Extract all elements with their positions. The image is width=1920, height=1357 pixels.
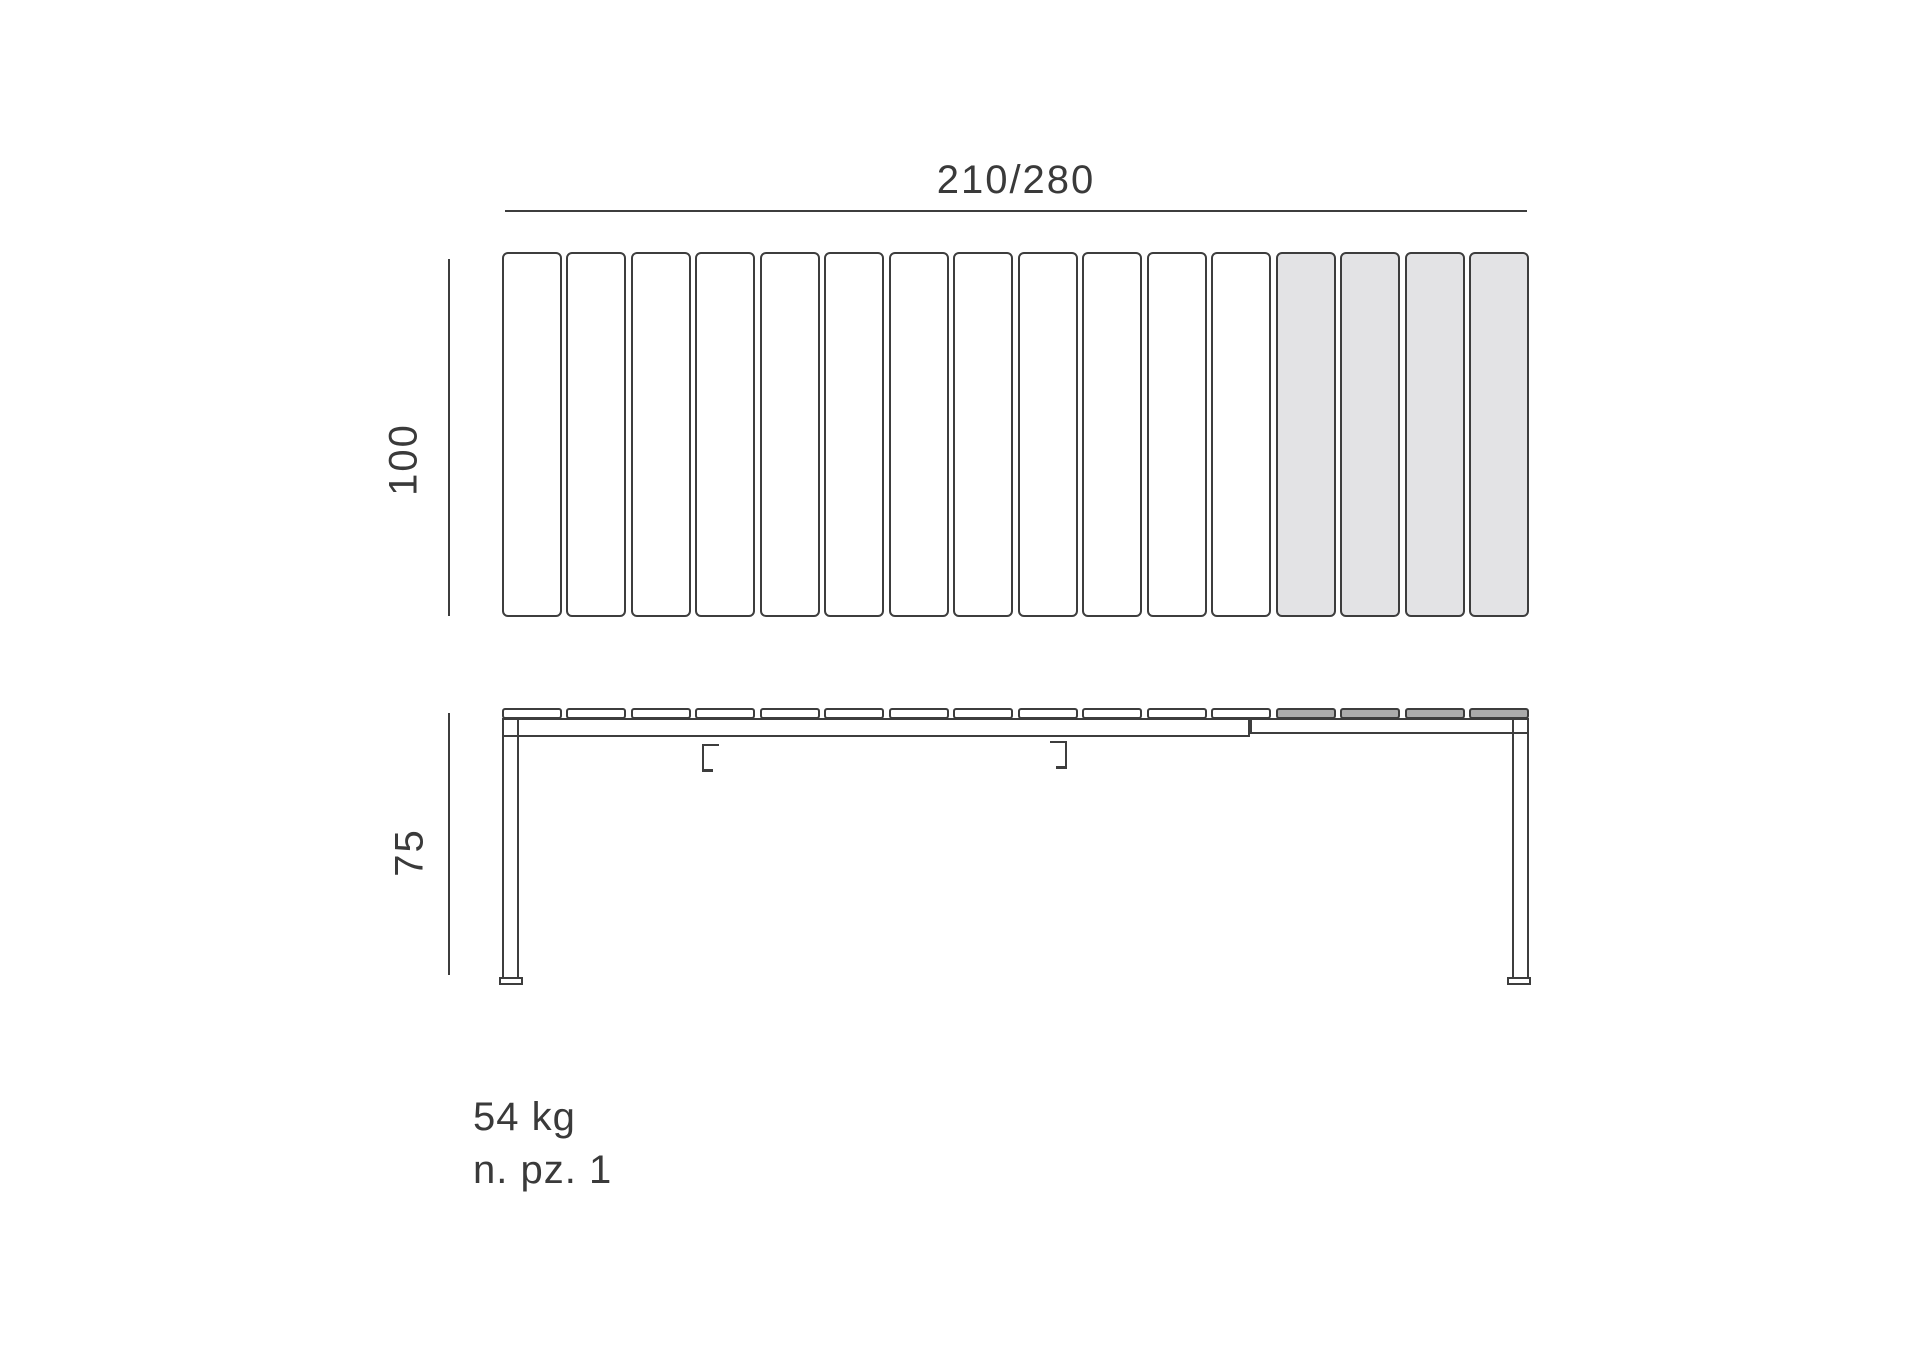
top-view-slat-gray xyxy=(1276,252,1336,617)
top-view-depth-dimension-line xyxy=(448,259,450,616)
top-view-width-label: 210/280 xyxy=(505,158,1527,203)
side-view-left-leg xyxy=(502,718,519,977)
dimension-drawing: 210/280 100 75 54 kg n. pz. 1 xyxy=(0,0,1920,1357)
top-view-slat-white xyxy=(1082,252,1142,617)
side-view-extension-rail xyxy=(1250,718,1529,734)
top-view-slat-white xyxy=(824,252,884,617)
pieces-label: n. pz. 1 xyxy=(473,1148,612,1193)
side-view-right-bracket xyxy=(1050,741,1067,769)
top-view-slat-white xyxy=(760,252,820,617)
side-view-right-bracket-foot xyxy=(1056,766,1065,769)
side-view-height-label: 75 xyxy=(388,793,433,913)
side-view-height-dimension-line xyxy=(448,713,450,975)
side-view-right-leg xyxy=(1512,718,1529,977)
side-view-left-bracket xyxy=(702,744,719,772)
side-view-right-foot xyxy=(1507,977,1531,985)
top-view-slat-white xyxy=(631,252,691,617)
top-view-slat-white xyxy=(695,252,755,617)
top-view-slat-white xyxy=(566,252,626,617)
top-view-slat-gray xyxy=(1340,252,1400,617)
side-view-left-bracket-foot xyxy=(704,769,713,772)
top-view-slat-gray xyxy=(1469,252,1529,617)
top-view-slat-white xyxy=(502,252,562,617)
top-view-slat-white xyxy=(1211,252,1271,617)
top-view-slat-gray xyxy=(1405,252,1465,617)
side-view-main-frame xyxy=(502,718,1250,737)
weight-label: 54 kg xyxy=(473,1095,576,1140)
side-view-left-foot xyxy=(499,977,523,985)
top-view-slat-white xyxy=(889,252,949,617)
top-view-depth-label: 100 xyxy=(382,400,427,520)
top-view-slat-white xyxy=(1018,252,1078,617)
top-view-slats xyxy=(502,252,1529,617)
top-view-slat-white xyxy=(1147,252,1207,617)
top-view-slat-white xyxy=(953,252,1013,617)
top-view-width-dimension-line xyxy=(505,210,1527,212)
